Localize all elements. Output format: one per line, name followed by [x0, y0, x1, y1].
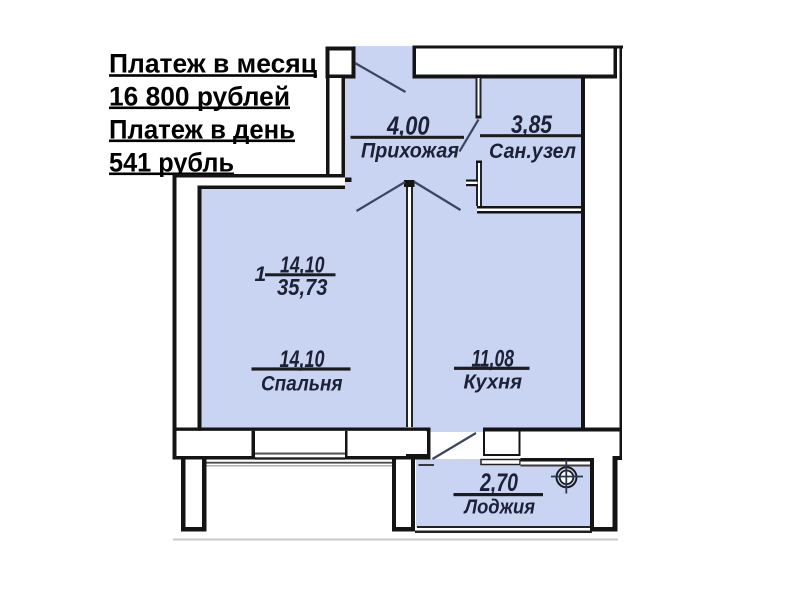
svg-text:Лоджия: Лоджия: [463, 496, 535, 519]
svg-text:Платеж в месяц: Платеж в месяц: [109, 49, 318, 79]
svg-text:1: 1: [255, 263, 267, 286]
svg-text:35,73: 35,73: [277, 274, 328, 300]
svg-text:Сан.узел: Сан.узел: [489, 139, 576, 163]
svg-text:2,70: 2,70: [479, 469, 518, 497]
svg-text:Спальня: Спальня: [261, 373, 343, 396]
svg-text:Кухня: Кухня: [464, 371, 523, 394]
svg-text:Прихожая: Прихожая: [361, 139, 459, 163]
